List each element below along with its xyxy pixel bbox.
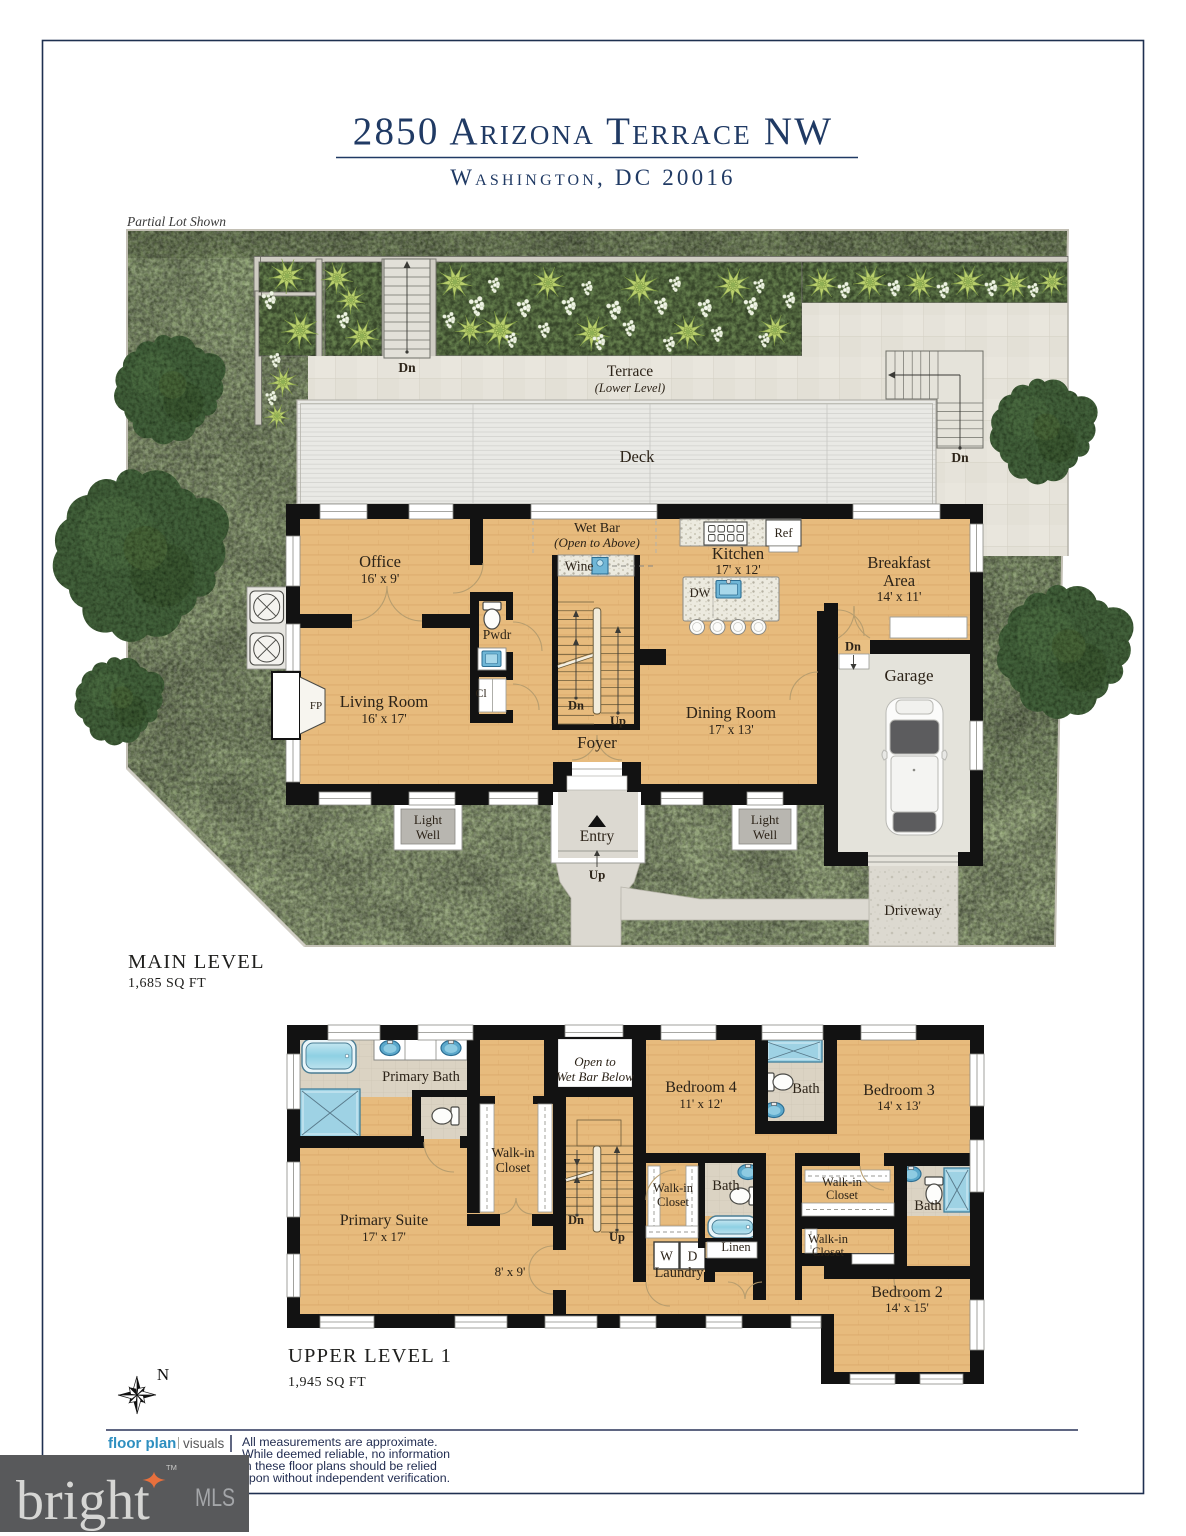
svg-text:Entry: Entry bbox=[580, 828, 615, 845]
svg-text:Deck: Deck bbox=[620, 447, 656, 466]
svg-text:Bedroom 2: Bedroom 2 bbox=[871, 1284, 943, 1301]
svg-text:Wet Bar Below: Wet Bar Below bbox=[556, 1069, 634, 1084]
svg-text:Up: Up bbox=[589, 867, 606, 882]
svg-text:Walk-in: Walk-in bbox=[653, 1181, 694, 1195]
svg-text:Closet: Closet bbox=[496, 1160, 531, 1175]
svg-text:17' x 17': 17' x 17' bbox=[362, 1229, 406, 1244]
svg-text:Walk-in: Walk-in bbox=[822, 1175, 863, 1189]
svg-text:FP: FP bbox=[310, 700, 322, 712]
svg-text:Dn: Dn bbox=[398, 360, 416, 375]
svg-text:Dn: Dn bbox=[568, 1213, 584, 1227]
svg-text:14' x 13': 14' x 13' bbox=[877, 1098, 921, 1113]
svg-text:Bedroom 3: Bedroom 3 bbox=[863, 1082, 935, 1099]
svg-text:Laundry: Laundry bbox=[654, 1265, 704, 1281]
svg-text:Well: Well bbox=[753, 827, 778, 842]
svg-text:2850 Arizona Terrace NW: 2850 Arizona Terrace NW bbox=[353, 110, 833, 153]
svg-text:17' x 12': 17' x 12' bbox=[715, 562, 760, 577]
svg-text:Linen: Linen bbox=[721, 1240, 751, 1254]
svg-text:8' x 9': 8' x 9' bbox=[495, 1264, 526, 1279]
svg-text:DW: DW bbox=[690, 586, 711, 600]
svg-text:Cl: Cl bbox=[475, 686, 487, 700]
svg-text:17' x 13': 17' x 13' bbox=[708, 722, 753, 737]
svg-text:16' x 9': 16' x 9' bbox=[361, 571, 400, 586]
svg-text:1,685 SQ FT: 1,685 SQ FT bbox=[128, 976, 206, 991]
svg-text:11' x 12': 11' x 12' bbox=[679, 1096, 722, 1111]
svg-text:14' x 15': 14' x 15' bbox=[885, 1300, 929, 1315]
svg-text:Walk-in: Walk-in bbox=[491, 1145, 534, 1160]
svg-text:16' x 17': 16' x 17' bbox=[361, 711, 406, 726]
svg-text:Well: Well bbox=[416, 827, 441, 842]
svg-text:Pwdr: Pwdr bbox=[483, 627, 512, 642]
svg-text:Washington, DC 20016: Washington, DC 20016 bbox=[450, 165, 735, 190]
svg-text:(Open to Above): (Open to Above) bbox=[554, 535, 640, 550]
svg-text:Walk-in: Walk-in bbox=[808, 1232, 849, 1246]
svg-text:Dn: Dn bbox=[845, 640, 861, 654]
svg-text:N: N bbox=[157, 1365, 169, 1384]
svg-text:Open to: Open to bbox=[574, 1054, 616, 1069]
svg-text:visuals: visuals bbox=[183, 1436, 225, 1451]
svg-text:Garage: Garage bbox=[884, 666, 933, 685]
svg-text:Foyer: Foyer bbox=[577, 733, 617, 752]
svg-text:Living Room: Living Room bbox=[340, 692, 429, 711]
svg-text:Dn: Dn bbox=[568, 699, 584, 713]
svg-text:Up: Up bbox=[610, 714, 626, 728]
svg-text:W: W bbox=[660, 1249, 673, 1264]
svg-text:upon without independent verif: upon without independent verification. bbox=[242, 1471, 450, 1485]
svg-text:Driveway: Driveway bbox=[884, 903, 942, 919]
svg-text:Ref: Ref bbox=[774, 526, 793, 540]
svg-text:Area: Area bbox=[883, 571, 916, 590]
svg-text:Wet Bar: Wet Bar bbox=[574, 521, 620, 536]
svg-text:Breakfast: Breakfast bbox=[867, 553, 931, 572]
svg-text:14' x 11': 14' x 11' bbox=[877, 589, 922, 604]
svg-text:Kitchen: Kitchen bbox=[712, 544, 764, 563]
svg-text:Closet: Closet bbox=[657, 1195, 689, 1209]
svg-text:floor plan: floor plan bbox=[108, 1435, 176, 1452]
svg-text:Primary Suite: Primary Suite bbox=[340, 1212, 428, 1229]
svg-text:MAIN LEVEL: MAIN LEVEL bbox=[128, 951, 265, 973]
svg-text:(Lower Level): (Lower Level) bbox=[595, 381, 665, 395]
svg-text:Wine: Wine bbox=[565, 559, 594, 574]
svg-text:Bedroom 4: Bedroom 4 bbox=[665, 1079, 737, 1096]
svg-text:Up: Up bbox=[609, 1230, 625, 1244]
svg-text:Dn: Dn bbox=[951, 450, 969, 465]
svg-text:Office: Office bbox=[359, 552, 401, 571]
svg-text:bright: bright bbox=[16, 1470, 150, 1532]
svg-text:Primary Bath: Primary Bath bbox=[382, 1069, 460, 1085]
svg-text:TM: TM bbox=[166, 1463, 177, 1472]
svg-text:Terrace: Terrace bbox=[607, 363, 653, 380]
svg-text:Partial Lot Shown: Partial Lot Shown bbox=[126, 214, 226, 229]
svg-text:Bath: Bath bbox=[712, 1178, 740, 1194]
svg-text:Closet: Closet bbox=[826, 1188, 858, 1202]
svg-text:Light: Light bbox=[751, 812, 780, 827]
svg-text:1,945 SQ FT: 1,945 SQ FT bbox=[288, 1375, 366, 1390]
svg-text:UPPER LEVEL 1: UPPER LEVEL 1 bbox=[288, 1345, 452, 1367]
svg-text:Bath: Bath bbox=[914, 1198, 942, 1214]
svg-text:D: D bbox=[688, 1249, 698, 1264]
svg-text:Closet: Closet bbox=[812, 1245, 844, 1259]
svg-text:MLS: MLS bbox=[195, 1484, 235, 1512]
svg-text:Dining Room: Dining Room bbox=[686, 703, 776, 722]
svg-text:Light: Light bbox=[414, 812, 443, 827]
svg-text:Bath: Bath bbox=[792, 1081, 820, 1097]
